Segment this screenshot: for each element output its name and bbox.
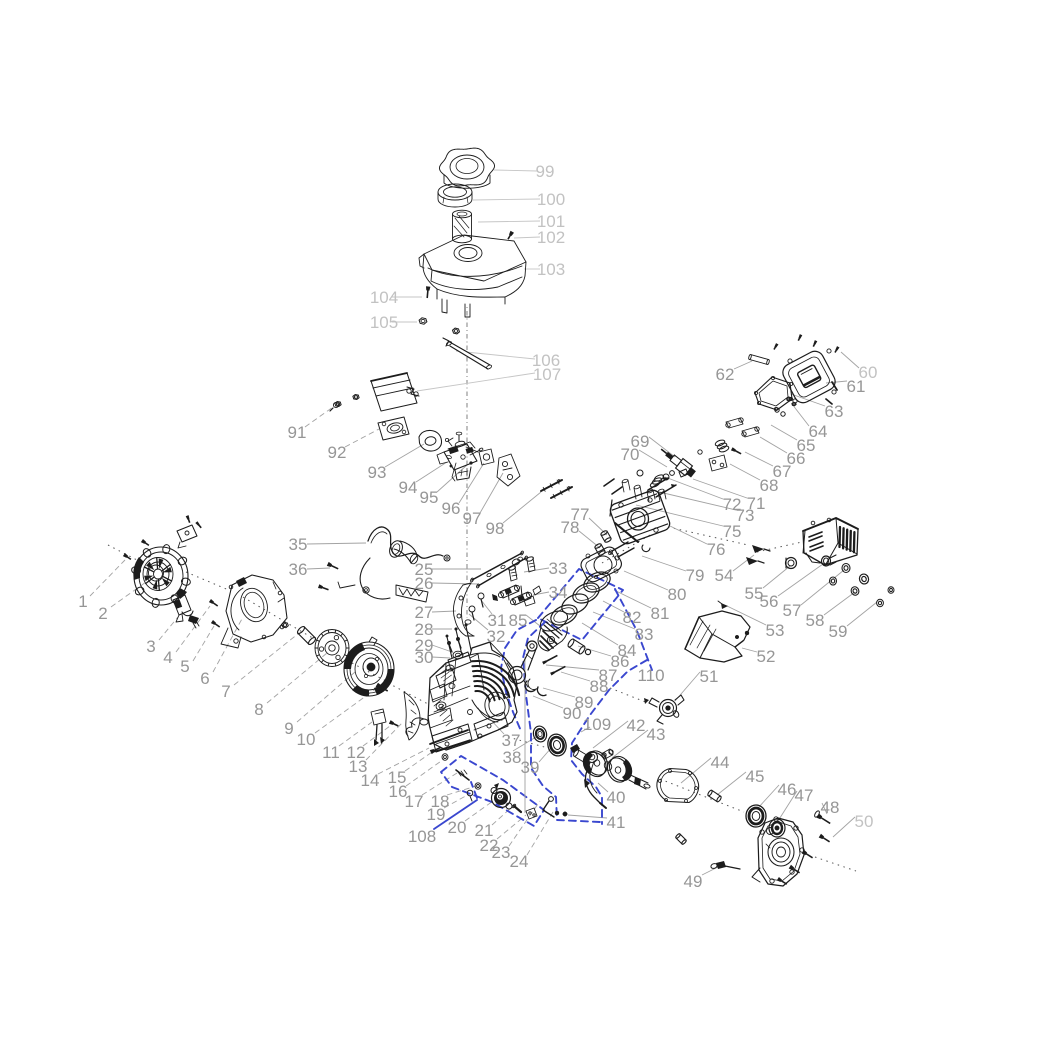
- svg-text:99: 99: [536, 162, 555, 181]
- svg-text:70: 70: [621, 445, 640, 464]
- svg-text:47: 47: [795, 786, 814, 805]
- svg-text:95: 95: [420, 488, 439, 507]
- svg-text:102: 102: [537, 228, 565, 247]
- svg-text:5: 5: [180, 657, 189, 676]
- svg-text:104: 104: [370, 288, 398, 307]
- svg-text:58: 58: [806, 611, 825, 630]
- svg-text:2: 2: [98, 604, 107, 623]
- svg-text:42: 42: [627, 716, 646, 735]
- svg-text:90: 90: [563, 704, 582, 723]
- svg-text:52: 52: [757, 647, 776, 666]
- svg-text:26: 26: [415, 574, 434, 593]
- svg-text:78: 78: [561, 518, 580, 537]
- svg-text:9: 9: [284, 719, 293, 738]
- svg-text:19: 19: [427, 805, 446, 824]
- svg-text:91: 91: [288, 423, 307, 442]
- svg-text:56: 56: [760, 592, 779, 611]
- svg-text:10: 10: [297, 730, 316, 749]
- svg-text:83: 83: [635, 625, 654, 644]
- svg-text:1: 1: [78, 592, 87, 611]
- svg-text:32: 32: [487, 627, 506, 646]
- svg-text:6: 6: [200, 669, 209, 688]
- svg-text:3: 3: [146, 637, 155, 656]
- svg-text:109: 109: [583, 715, 611, 734]
- svg-text:17: 17: [405, 792, 424, 811]
- svg-text:100: 100: [537, 190, 565, 209]
- svg-text:105: 105: [370, 313, 398, 332]
- svg-text:30: 30: [415, 648, 434, 667]
- svg-text:92: 92: [328, 443, 347, 462]
- svg-text:80: 80: [668, 585, 687, 604]
- svg-text:57: 57: [783, 601, 802, 620]
- svg-text:53: 53: [766, 621, 785, 640]
- svg-text:14: 14: [361, 771, 380, 790]
- svg-text:51: 51: [700, 667, 719, 686]
- svg-text:33: 33: [549, 559, 568, 578]
- svg-text:38: 38: [503, 748, 522, 767]
- svg-text:7: 7: [221, 682, 230, 701]
- svg-text:41: 41: [607, 813, 626, 832]
- svg-text:62: 62: [716, 365, 735, 384]
- svg-text:96: 96: [442, 499, 461, 518]
- svg-text:63: 63: [825, 402, 844, 421]
- svg-text:107: 107: [533, 365, 561, 384]
- svg-text:61: 61: [847, 377, 866, 396]
- svg-text:98: 98: [486, 519, 505, 538]
- svg-text:54: 54: [715, 566, 734, 585]
- svg-text:20: 20: [448, 818, 467, 837]
- svg-text:34: 34: [549, 583, 568, 602]
- svg-text:108: 108: [408, 827, 436, 846]
- svg-text:59: 59: [829, 622, 848, 641]
- svg-text:43: 43: [647, 725, 666, 744]
- svg-text:8: 8: [254, 700, 263, 719]
- svg-text:68: 68: [760, 476, 779, 495]
- svg-text:79: 79: [686, 566, 705, 585]
- svg-text:40: 40: [607, 788, 626, 807]
- svg-text:85: 85: [509, 611, 528, 630]
- svg-text:39: 39: [521, 758, 540, 777]
- svg-text:76: 76: [707, 540, 726, 559]
- svg-text:94: 94: [399, 478, 418, 497]
- svg-text:24: 24: [510, 852, 529, 871]
- svg-text:75: 75: [723, 522, 742, 541]
- svg-text:50: 50: [855, 812, 874, 831]
- svg-text:44: 44: [711, 753, 730, 772]
- svg-text:48: 48: [821, 798, 840, 817]
- svg-text:11: 11: [322, 743, 340, 762]
- svg-text:45: 45: [746, 767, 765, 786]
- svg-text:110: 110: [637, 666, 664, 685]
- svg-text:23: 23: [492, 843, 511, 862]
- svg-text:93: 93: [368, 463, 387, 482]
- svg-text:4: 4: [163, 648, 172, 667]
- svg-text:103: 103: [537, 260, 565, 279]
- svg-text:49: 49: [684, 872, 703, 891]
- svg-text:97: 97: [463, 509, 482, 528]
- svg-text:81: 81: [651, 604, 670, 623]
- svg-text:36: 36: [289, 560, 308, 579]
- svg-text:35: 35: [289, 535, 308, 554]
